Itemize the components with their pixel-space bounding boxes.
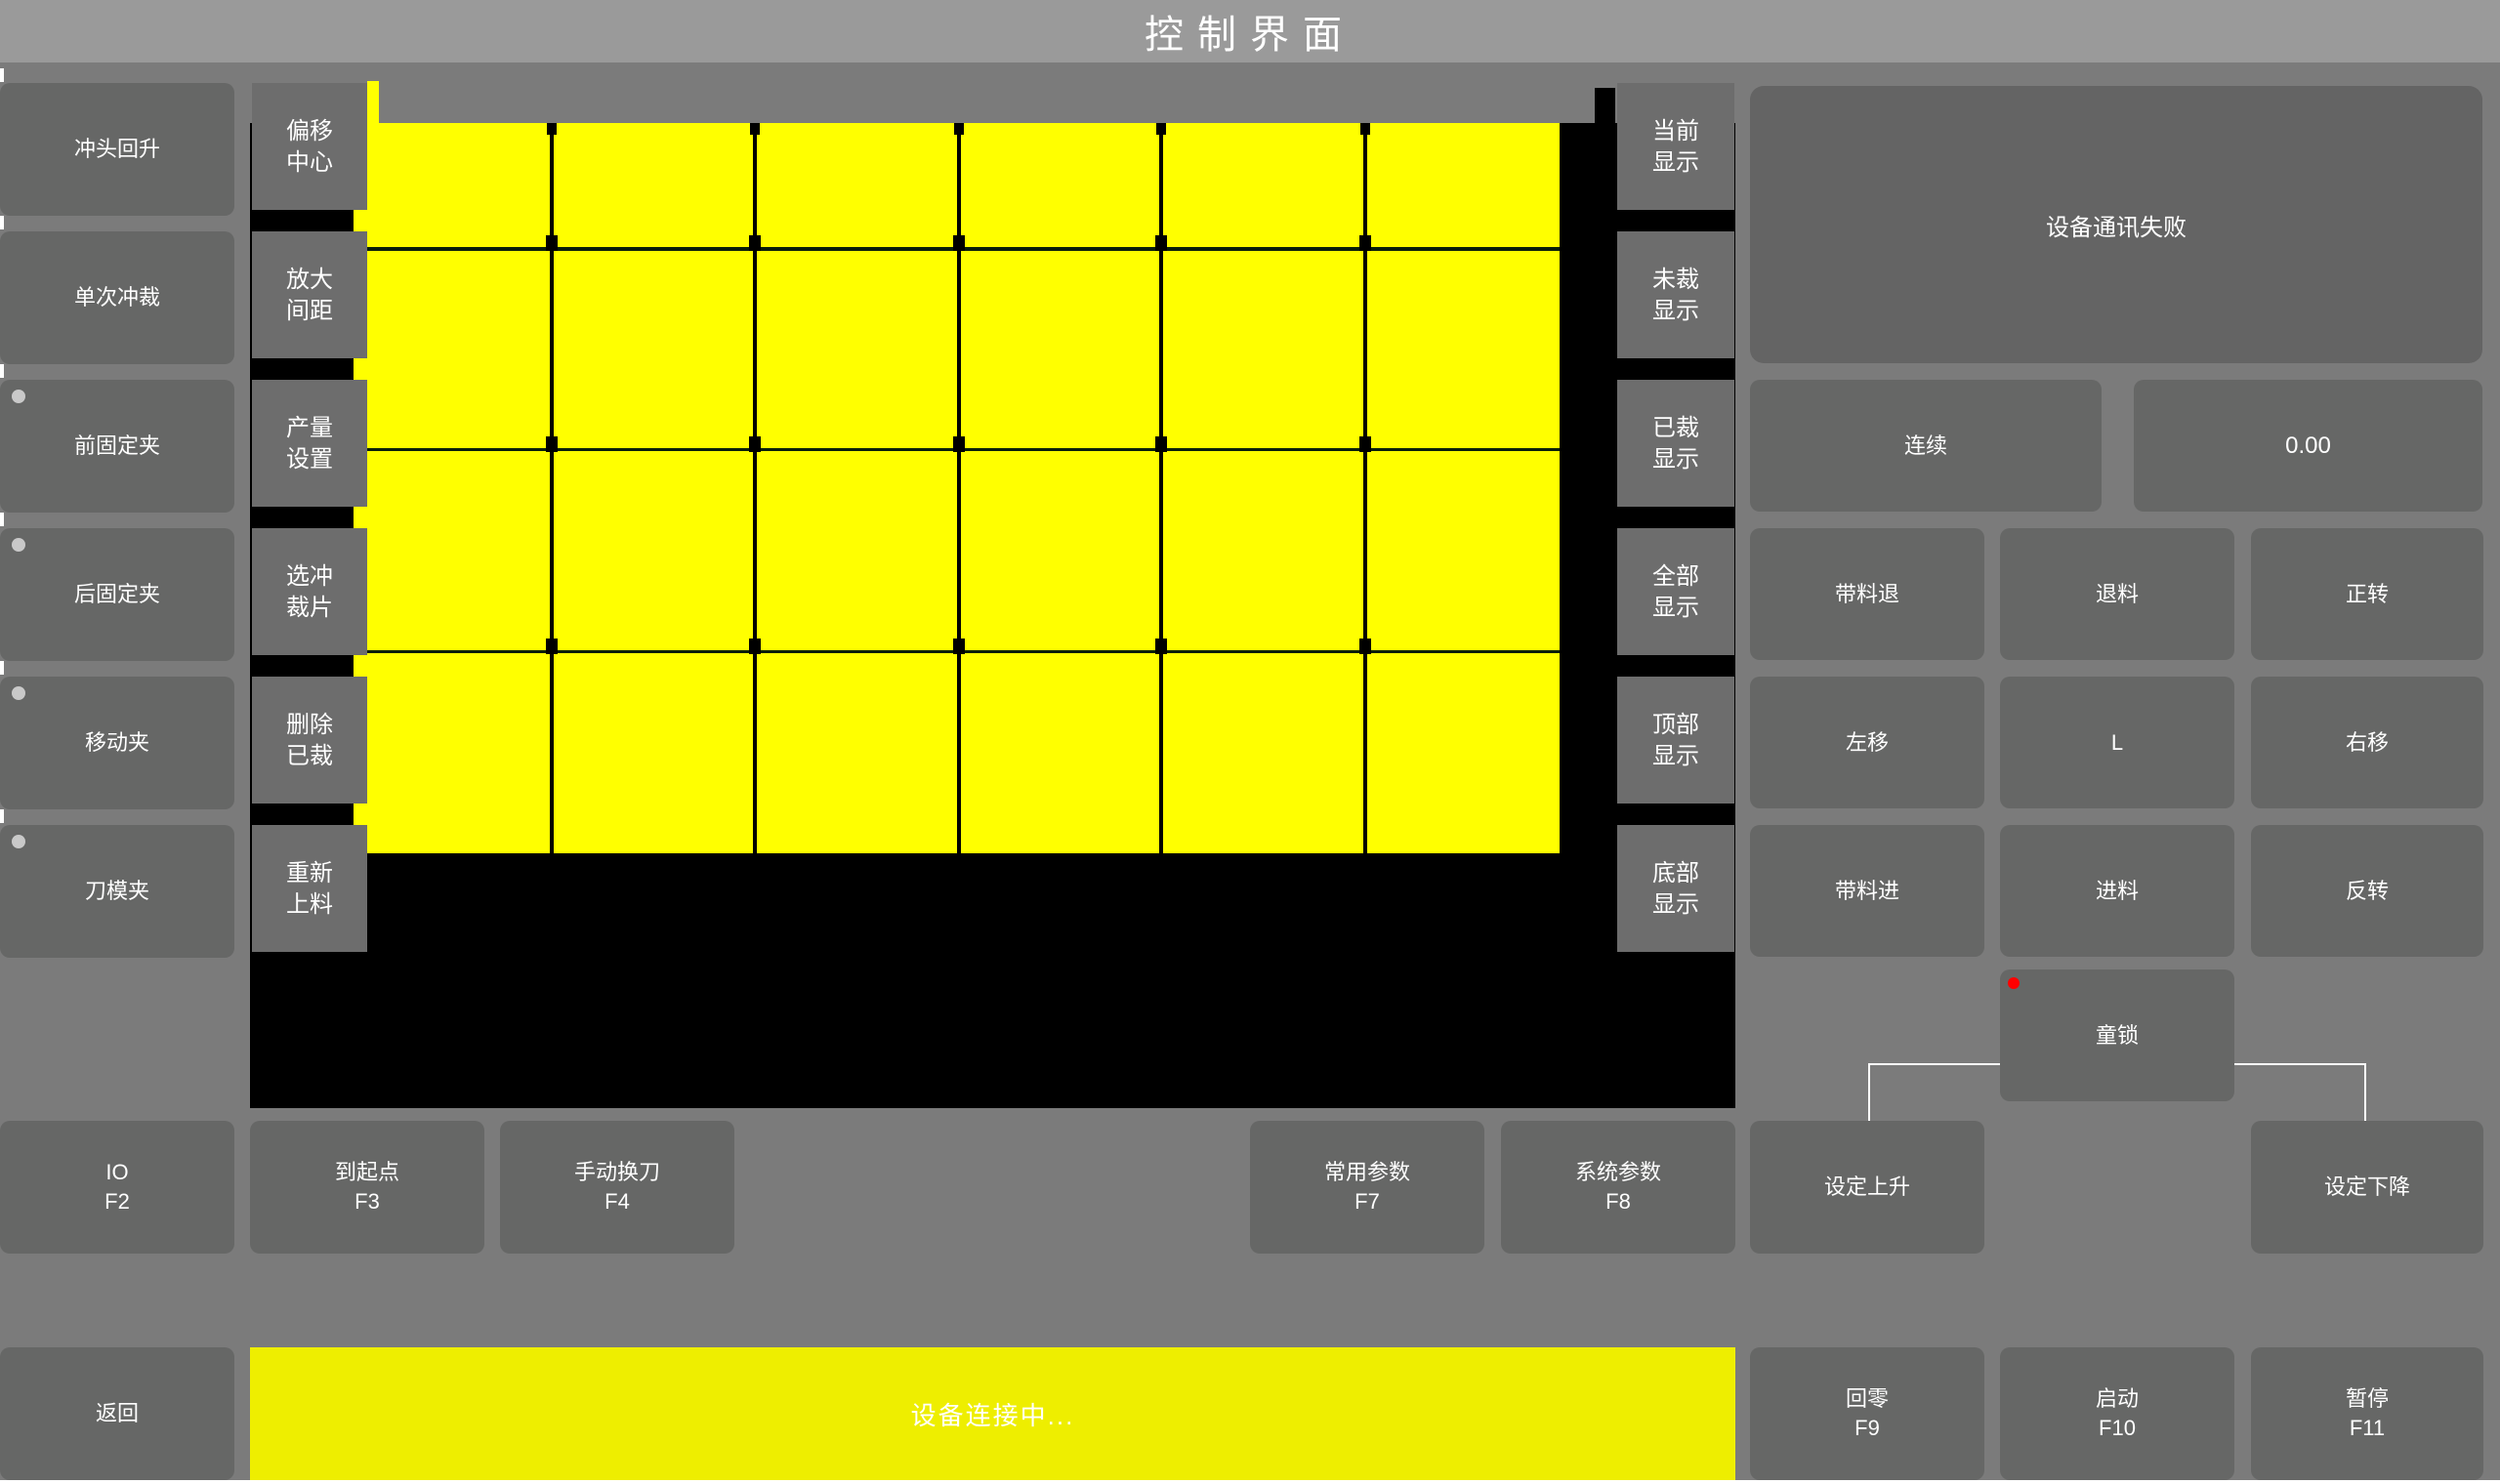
current-display-button[interactable]: 当前显示 bbox=[1617, 83, 1734, 210]
grid-tick bbox=[1359, 235, 1371, 251]
indicator-dot bbox=[12, 538, 25, 552]
offset-center-button[interactable]: 偏移中心 bbox=[252, 83, 367, 210]
l-indicator-button[interactable]: L bbox=[2000, 677, 2234, 808]
punch-return-button[interactable]: 冲头回升 bbox=[0, 83, 234, 216]
forward-rotate-button[interactable]: 正转 bbox=[2251, 528, 2483, 660]
page-title: 控制界面 bbox=[1145, 3, 1355, 60]
back-button[interactable]: 返回 bbox=[0, 1347, 234, 1480]
device-message-box: 设备通讯失败 bbox=[1750, 86, 2482, 363]
grid-top-notch bbox=[367, 81, 379, 123]
output-settings-button[interactable]: 产量设置 bbox=[252, 380, 367, 507]
grid-tick bbox=[1155, 639, 1167, 654]
alert-dot bbox=[2008, 977, 2020, 989]
grid-line bbox=[1159, 123, 1163, 853]
grid-tick bbox=[1359, 436, 1371, 452]
grid-tick bbox=[1359, 639, 1371, 654]
manual-toolchange-f4-button[interactable]: 手动换刀F4 bbox=[500, 1121, 734, 1254]
sheet-grid[interactable] bbox=[354, 123, 1560, 853]
title-bar: 控制界面 bbox=[0, 0, 2500, 62]
move-left-button[interactable]: 左移 bbox=[1750, 677, 1984, 808]
move-right-button[interactable]: 右移 bbox=[2251, 677, 2483, 808]
moving-clamp-button[interactable]: 移动夹 bbox=[0, 677, 234, 809]
set-rise-button[interactable]: 设定上升 bbox=[1750, 1121, 1984, 1254]
reload-material-button[interactable]: 重新上料 bbox=[252, 825, 367, 952]
grid-line bbox=[957, 123, 961, 853]
connector-line bbox=[1868, 1063, 1870, 1123]
edge-tick bbox=[0, 216, 4, 229]
grid-tick bbox=[749, 235, 761, 251]
grid-tick bbox=[953, 235, 965, 251]
origin-f3-button[interactable]: 到起点F3 bbox=[250, 1121, 484, 1254]
pause-f11-button[interactable]: 暂停F11 bbox=[2251, 1347, 2483, 1480]
grid-tick bbox=[750, 123, 760, 135]
edge-tick bbox=[0, 68, 4, 82]
edge-tick bbox=[0, 661, 4, 675]
enlarge-gap-button[interactable]: 放大间距 bbox=[252, 231, 367, 358]
cut-display-button[interactable]: 已裁显示 bbox=[1617, 380, 1734, 507]
front-clamp-button[interactable]: 前固定夹 bbox=[0, 380, 234, 513]
grid-tick bbox=[1155, 436, 1167, 452]
grid-tick bbox=[954, 123, 964, 135]
indicator-dot bbox=[12, 390, 25, 403]
value-display: 0.00 bbox=[2134, 380, 2482, 512]
retract-button[interactable]: 退料 bbox=[2000, 528, 2234, 660]
grid-tick bbox=[749, 436, 761, 452]
connector-line bbox=[2234, 1063, 2366, 1065]
grid-tick bbox=[547, 123, 557, 135]
control-screen: 控制界面 冲头回升 单次冲裁 前固定夹 后固定夹 移动夹 刀模夹 bbox=[0, 0, 2500, 1484]
indicator-dot bbox=[12, 835, 25, 848]
edge-tick bbox=[0, 809, 4, 823]
edge-tick bbox=[0, 513, 4, 526]
edge-tick bbox=[0, 364, 4, 378]
child-lock-button[interactable]: 童锁 bbox=[2000, 969, 2234, 1101]
status-message: 设备连接中... bbox=[911, 1396, 1075, 1432]
strip-forward-button[interactable]: 带料进 bbox=[1750, 825, 1984, 957]
grid-tick bbox=[953, 436, 965, 452]
continuous-mode-button[interactable]: 连续 bbox=[1750, 380, 2102, 512]
system-params-f8-button[interactable]: 系统参数F8 bbox=[1501, 1121, 1735, 1254]
die-clamp-button[interactable]: 刀模夹 bbox=[0, 825, 234, 958]
grid-tick bbox=[546, 235, 558, 251]
common-params-f7-button[interactable]: 常用参数F7 bbox=[1250, 1121, 1484, 1254]
bottom-display-button[interactable]: 底部显示 bbox=[1617, 825, 1734, 952]
grid-line bbox=[550, 123, 554, 853]
indicator-dot bbox=[12, 686, 25, 700]
grid-line bbox=[753, 123, 757, 853]
uncut-display-button[interactable]: 未裁显示 bbox=[1617, 231, 1734, 358]
grid-line bbox=[1363, 123, 1367, 853]
io-f2-button[interactable]: IOF2 bbox=[0, 1121, 234, 1254]
canvas-top-notch bbox=[1595, 88, 1615, 123]
top-display-button[interactable]: 顶部显示 bbox=[1617, 677, 1734, 804]
reverse-rotate-button[interactable]: 反转 bbox=[2251, 825, 2483, 957]
status-bar: 设备连接中... bbox=[250, 1347, 1735, 1480]
connector-line bbox=[1868, 1063, 2000, 1065]
set-fall-button[interactable]: 设定下降 bbox=[2251, 1121, 2483, 1254]
grid-tick bbox=[1156, 123, 1166, 135]
delete-cut-button[interactable]: 删除已裁 bbox=[252, 677, 367, 804]
connector-line bbox=[2364, 1063, 2366, 1123]
grid-tick bbox=[1155, 235, 1167, 251]
single-punch-button[interactable]: 单次冲裁 bbox=[0, 231, 234, 364]
strip-back-button[interactable]: 带料退 bbox=[1750, 528, 1984, 660]
rear-clamp-button[interactable]: 后固定夹 bbox=[0, 528, 234, 661]
grid-tick bbox=[953, 639, 965, 654]
home-f9-button[interactable]: 回零F9 bbox=[1750, 1347, 1984, 1480]
grid-tick bbox=[546, 436, 558, 452]
bottom-edge bbox=[0, 1480, 2500, 1484]
grid-tick bbox=[749, 639, 761, 654]
all-display-button[interactable]: 全部显示 bbox=[1617, 528, 1734, 655]
select-piece-button[interactable]: 选冲裁片 bbox=[252, 528, 367, 655]
grid-tick bbox=[546, 639, 558, 654]
grid-tick bbox=[1360, 123, 1370, 135]
feed-button[interactable]: 进料 bbox=[2000, 825, 2234, 957]
device-message: 设备通讯失败 bbox=[2046, 208, 2187, 242]
start-f10-button[interactable]: 启动F10 bbox=[2000, 1347, 2234, 1480]
